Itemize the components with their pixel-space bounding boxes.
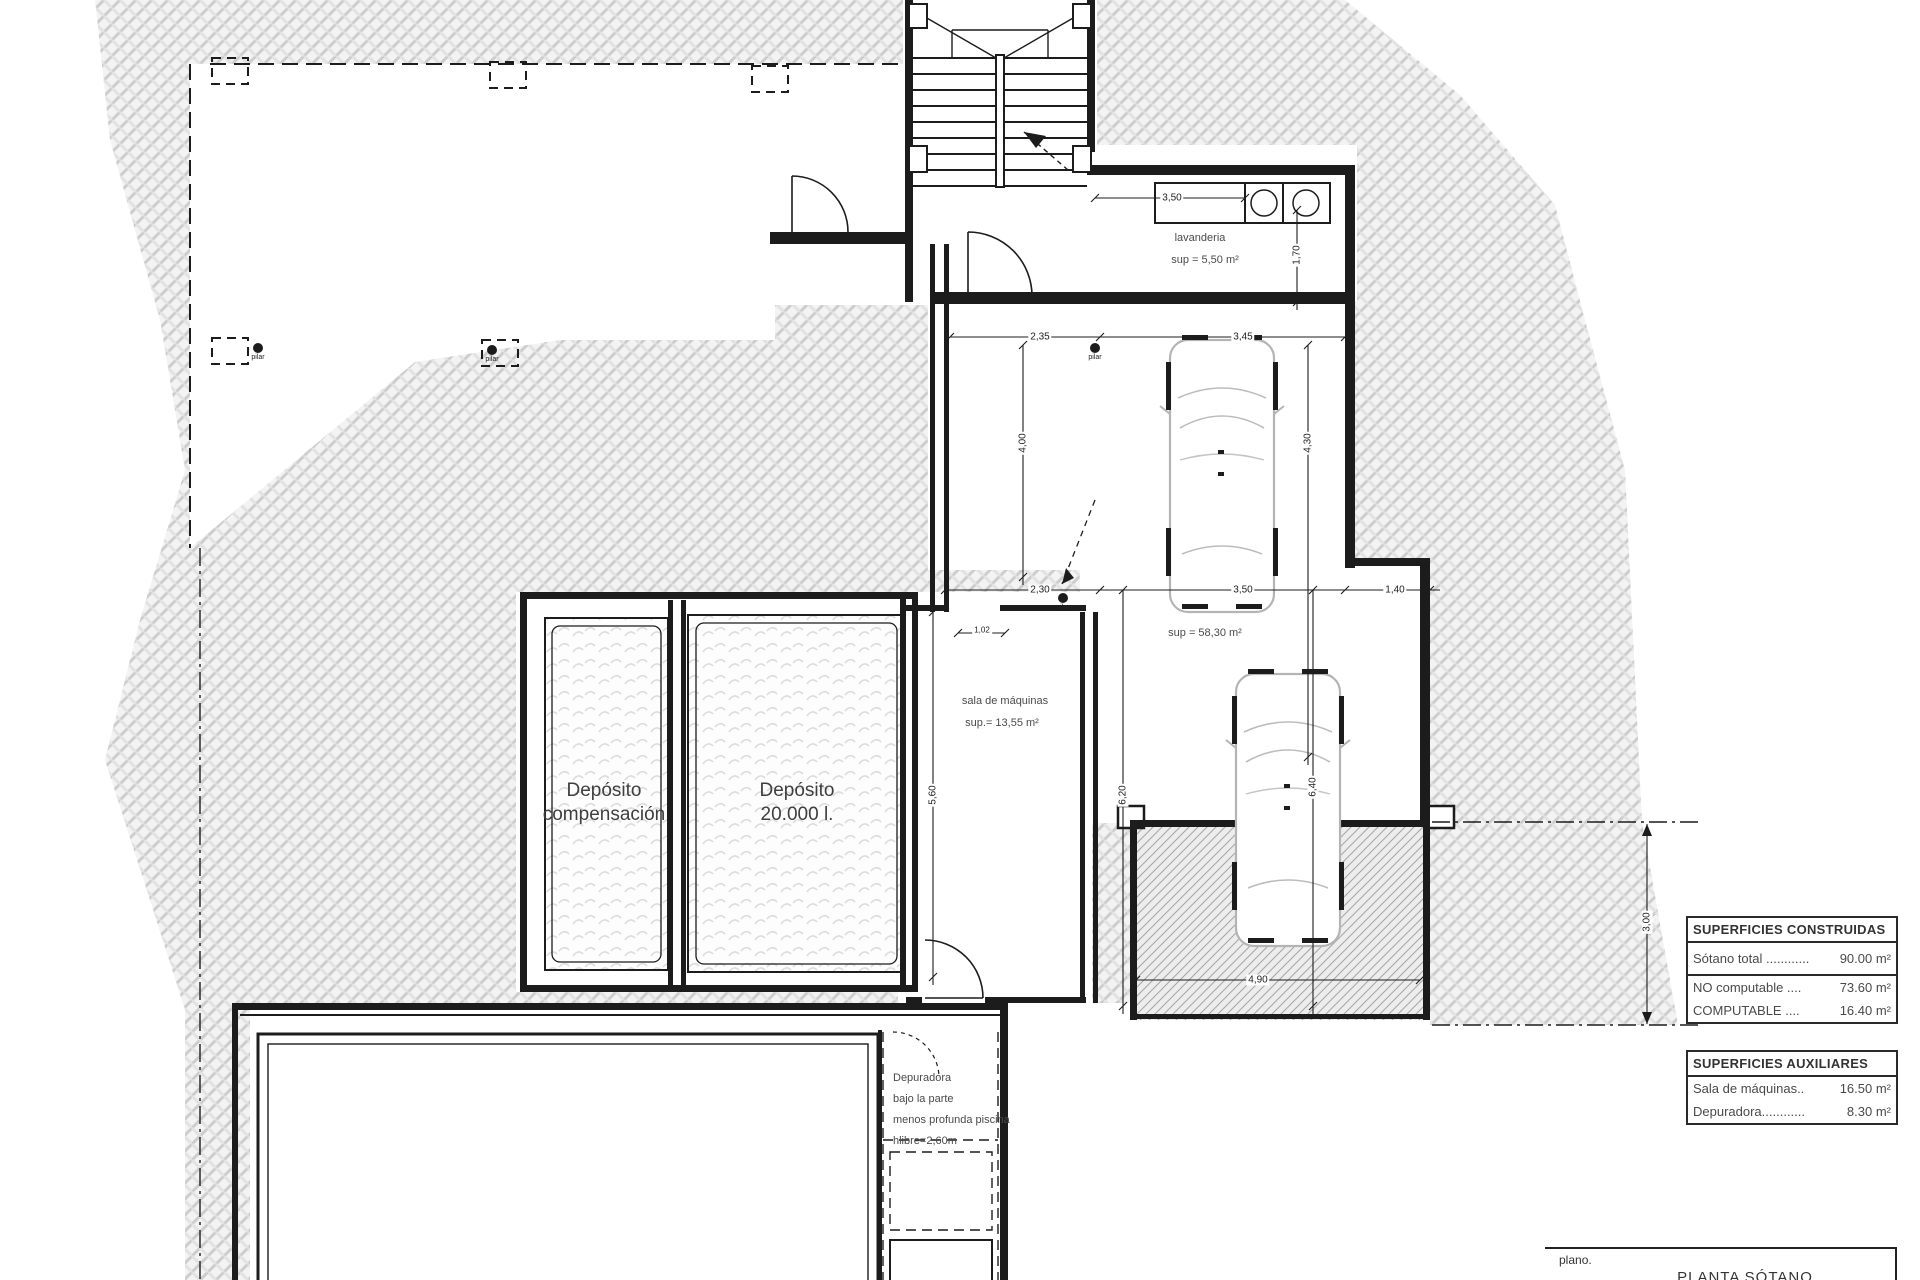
pool-basin (258, 1034, 878, 1280)
pilar-label-1: pilar (251, 354, 264, 361)
floor-plan-page: 3,50 1,70 2,35 3,45 4,00 4,30 2,30 3,50 … (0, 0, 1920, 1280)
title-block: plano. PLANTA SÓTANO (1545, 1247, 1897, 1280)
table-row: Sótano total ............ 90.00 m² (1688, 943, 1896, 976)
table-row: NO computable .... 73.60 m² (1688, 976, 1896, 999)
row-value: 73.60 m² (1840, 980, 1891, 995)
depuradora-note-3: menos profunda piscina (893, 1114, 1010, 1126)
depuradora-note-2: bajo la parte (893, 1093, 954, 1105)
tank-20000-line1: Depósito (760, 780, 835, 802)
laundry-name: lavanderia (1175, 232, 1226, 244)
car-2 (1226, 669, 1350, 946)
row-label: COMPUTABLE .... (1693, 1003, 1800, 1018)
table-row: Sala de máquinas.. 16.50 m² (1688, 1077, 1896, 1100)
depuradora-note-1: Depuradora (893, 1072, 951, 1084)
machine-room-name: sala de máquinas (962, 695, 1048, 707)
dim-300: 3,00 (1642, 910, 1653, 933)
dim-350-mid: 3,50 (1231, 585, 1254, 596)
dim-640: 6,40 (1308, 775, 1319, 798)
plano-label: plano. (1559, 1253, 1592, 1267)
dim-laundry-width: 3,50 (1160, 193, 1183, 204)
row-value: 8.30 m² (1847, 1104, 1891, 1119)
dim-490: 4,90 (1246, 975, 1269, 986)
pilar-label-3: pilar (1088, 354, 1101, 361)
tank-compensation-line1: Depósito (567, 780, 642, 802)
floor-plan-drawing (0, 0, 1920, 1280)
dim-560: 5,60 (928, 783, 939, 806)
row-label: Depuradora............ (1693, 1104, 1805, 1119)
dim-430: 4,30 (1303, 431, 1314, 454)
dim-140: 1,40 (1383, 585, 1406, 596)
table-construidas-header: SUPERFICIES CONSTRUIDAS (1688, 918, 1896, 943)
machine-room-area: sup.= 13,55 m² (965, 717, 1039, 729)
table-superficies-construidas: SUPERFICIES CONSTRUIDAS Sótano total ...… (1686, 916, 1898, 1024)
dim-230: 2,30 (1028, 585, 1051, 596)
car-1 (1160, 335, 1284, 612)
table-row: Depuradora............ 8.30 m² (1688, 1100, 1896, 1123)
row-value: 90.00 m² (1840, 951, 1891, 966)
dim-102: 1,02 (972, 625, 992, 636)
plan-title: PLANTA SÓTANO (1625, 1269, 1865, 1280)
row-label: Sala de máquinas.. (1693, 1081, 1804, 1096)
pilar-label-2: pilar (485, 356, 498, 363)
depuradora-corridor (883, 1032, 998, 1280)
table-row: COMPUTABLE .... 16.40 m² (1688, 999, 1896, 1022)
dim-laundry-depth: 1,70 (1292, 243, 1303, 266)
tank-compensation-line2: compensación (543, 804, 666, 826)
row-label: Sótano total ............ (1693, 951, 1809, 966)
table-auxiliares-header: SUPERFICIES AUXILIARES (1688, 1052, 1896, 1077)
row-value: 16.40 m² (1840, 1003, 1891, 1018)
pilar-label-4: pilar (1056, 604, 1069, 611)
depuradora-note-4: hlibre=2,60m (893, 1135, 957, 1147)
row-label: NO computable .... (1693, 980, 1801, 995)
dim-400: 4,00 (1018, 431, 1029, 454)
table-superficies-auxiliares: SUPERFICIES AUXILIARES Sala de máquinas.… (1686, 1050, 1898, 1125)
row-value: 16.50 m² (1840, 1081, 1891, 1096)
garage-area: sup = 58,30 m² (1168, 627, 1242, 639)
dim-620: 6,20 (1118, 783, 1129, 806)
tank-20000-line2: 20.000 l. (761, 804, 834, 826)
laundry-area: sup = 5,50 m² (1171, 254, 1239, 266)
dim-235: 2,35 (1028, 332, 1051, 343)
dim-345: 3,45 (1231, 332, 1254, 343)
